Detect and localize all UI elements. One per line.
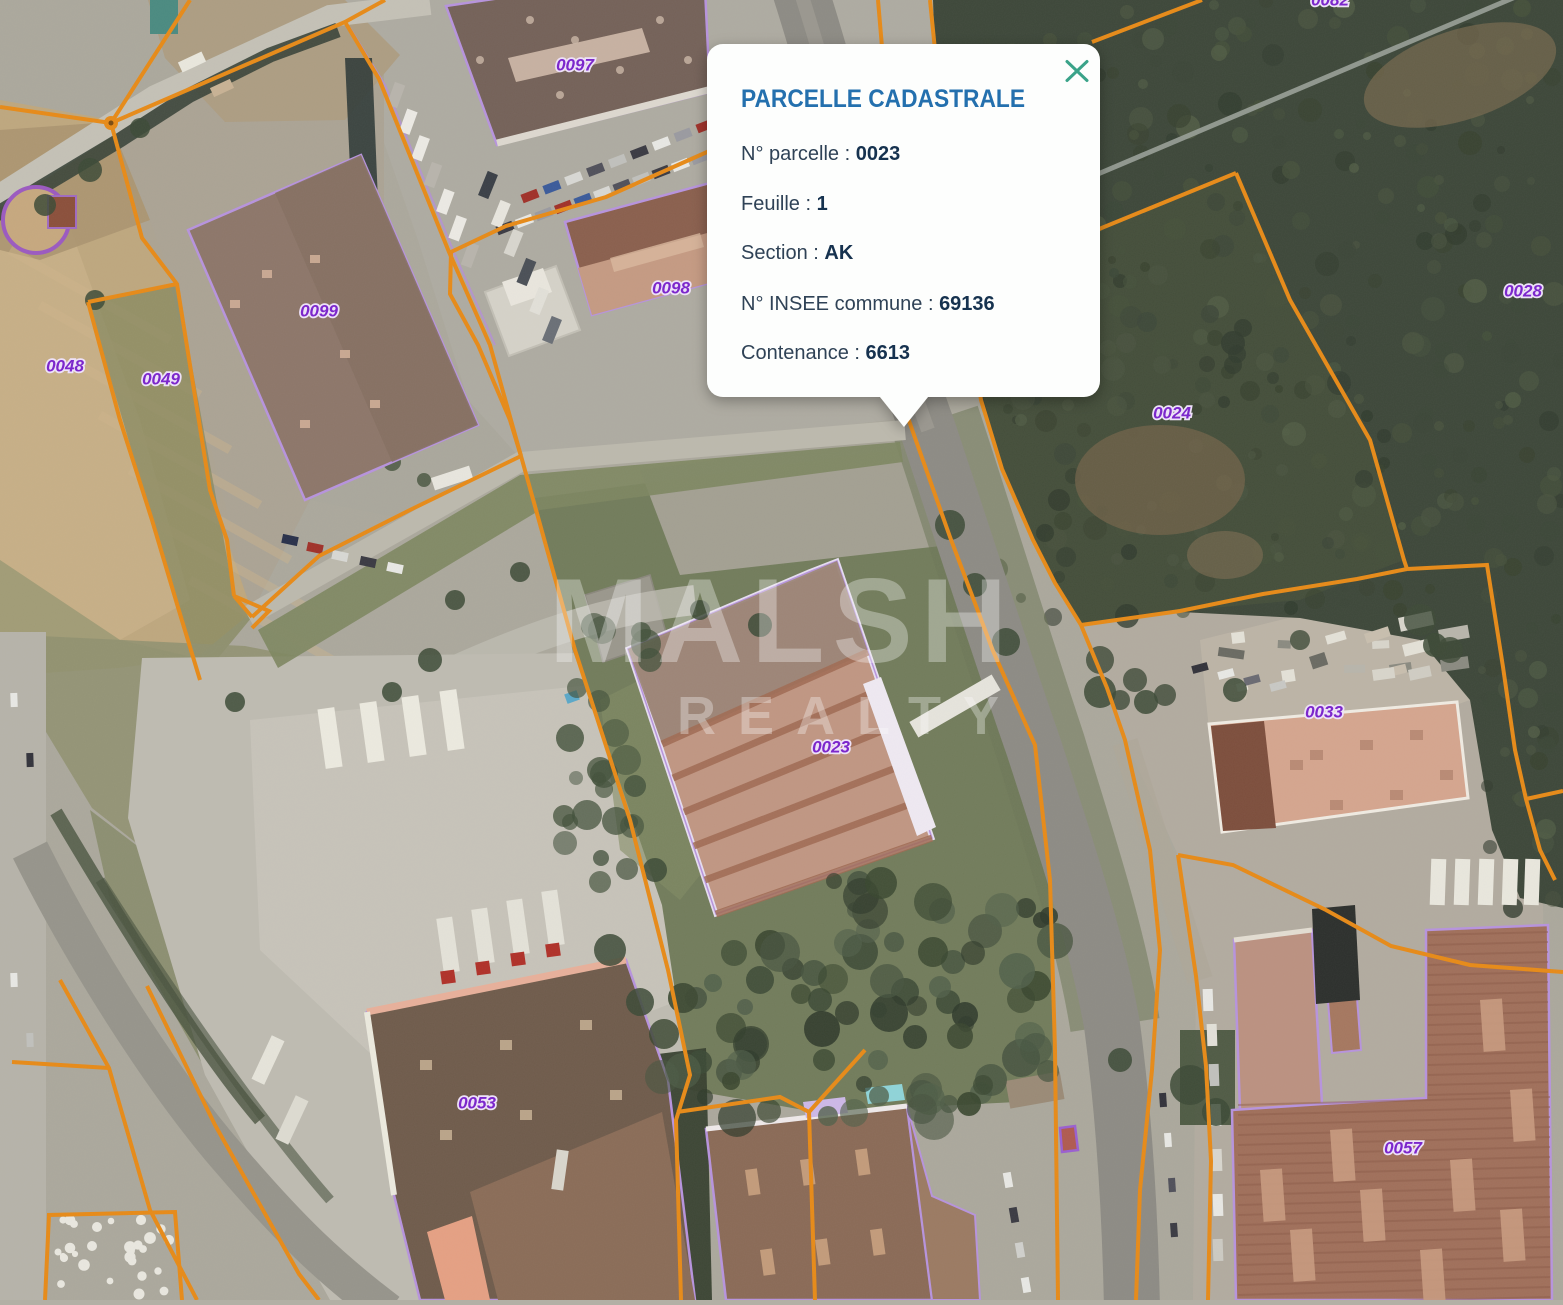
svg-text:PARCELLE CADASTRALE: PARCELLE CADASTRALE: [741, 85, 1025, 113]
svg-text:Section : AK: Section : AK: [741, 242, 854, 264]
svg-text:Contenance : 6613: Contenance : 6613: [741, 342, 910, 364]
svg-text:N° parcelle : 0023: N° parcelle : 0023: [741, 143, 900, 165]
svg-text:N° INSEE commune : 69136: N° INSEE commune : 69136: [741, 293, 995, 315]
svg-text:Feuille : 1: Feuille : 1: [741, 193, 828, 215]
